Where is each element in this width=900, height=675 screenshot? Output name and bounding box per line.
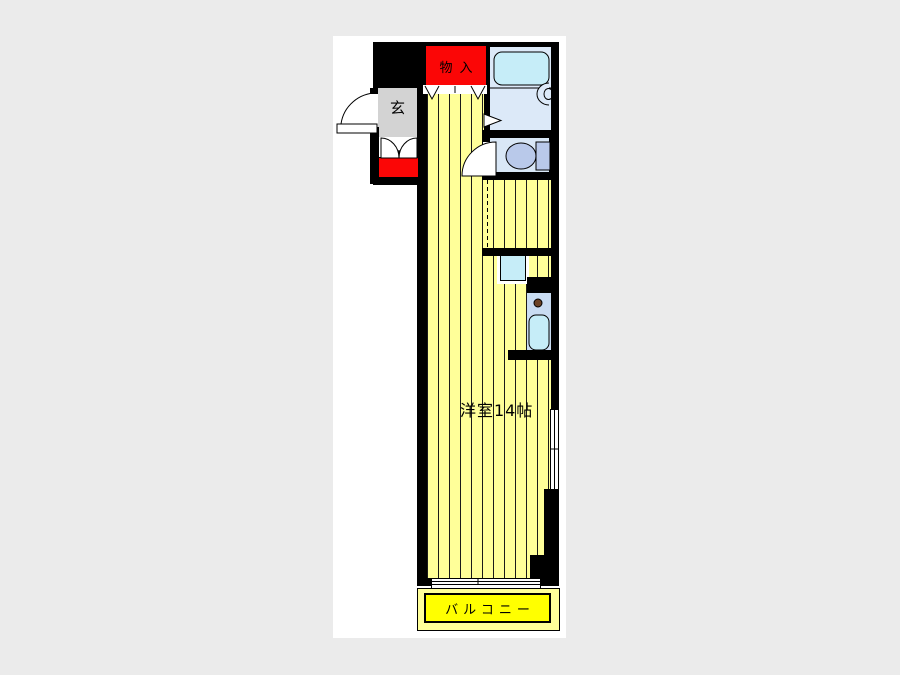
entrance-door-arc-icon: [341, 93, 377, 124]
shoe-cabinet-door-area: [378, 137, 417, 159]
wall-kitchen-bottom: [508, 350, 553, 360]
balcony-inner: バルコニー: [424, 593, 551, 623]
wall-entrance-bottom: [373, 177, 427, 185]
shoe-box: [378, 157, 419, 178]
bathroom-floor: [490, 46, 551, 131]
bathroom: [484, 42, 559, 140]
wall-door-jamb-top: [370, 88, 378, 94]
closet: 物入: [424, 44, 488, 88]
main-room-label: 洋室14帖: [460, 397, 533, 421]
kitchen-counter: [527, 293, 552, 352]
toilet-floor: [490, 138, 549, 172]
floorplan-paper: 洋室14帖 玄 物入 バルコニー: [333, 36, 566, 638]
wall-mid: [482, 248, 553, 256]
toilet-room: [482, 130, 559, 180]
balcony: バルコニー: [417, 588, 560, 631]
wall-jog: [527, 277, 553, 293]
wall-top-left-block: [373, 42, 427, 88]
toilet-door-opening: [483, 142, 490, 171]
wall-right-lower: [544, 489, 559, 556]
closet-door-band: [423, 85, 487, 94]
balcony-label: バルコニー: [440, 599, 535, 618]
closet-label: 物入: [432, 57, 479, 76]
entrance-label: 玄: [390, 97, 405, 118]
washer-pan-icon: [500, 255, 526, 281]
wall-bottom: [419, 578, 559, 586]
entrance-hall: 玄: [378, 88, 417, 140]
